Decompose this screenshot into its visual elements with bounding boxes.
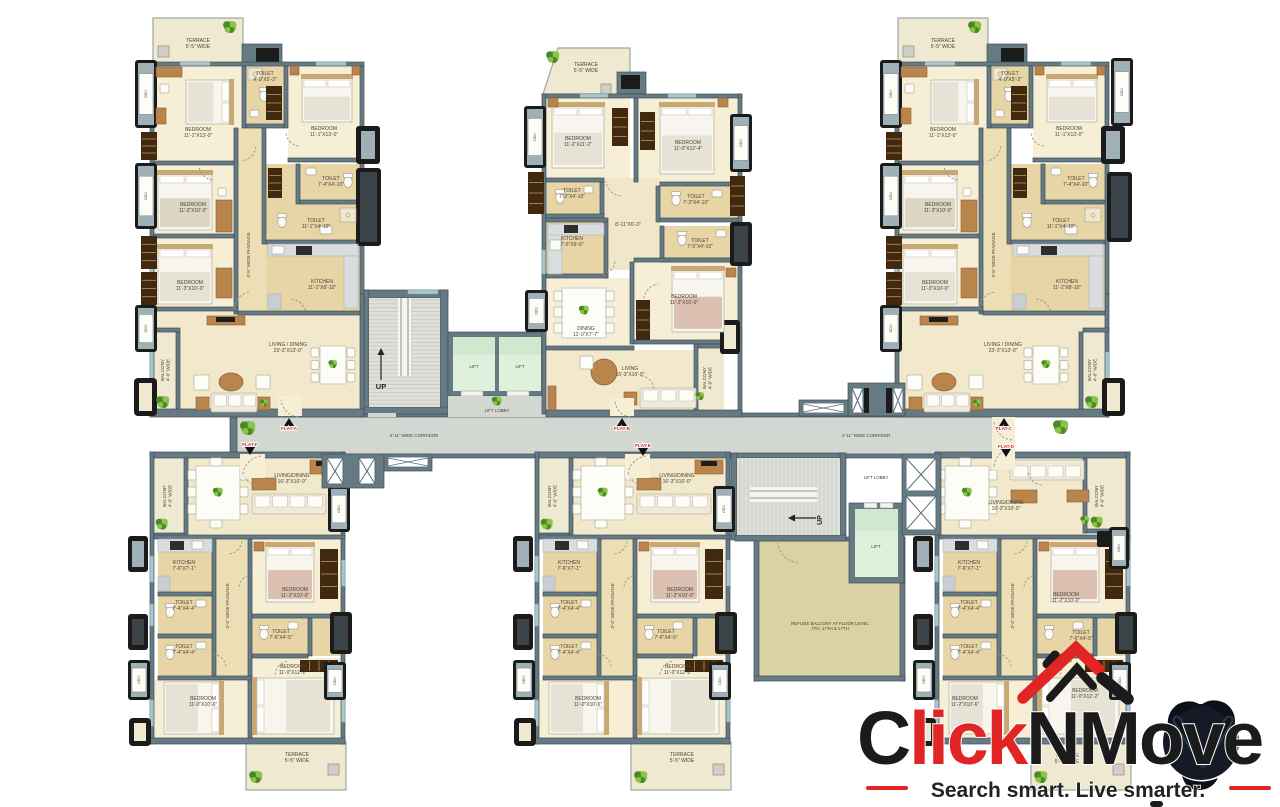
svg-text:7'-6"X4'-5": 7'-6"X4'-5" [269, 635, 292, 641]
svg-text:ClickNMove: ClickNMove [857, 696, 1262, 780]
svg-text:4'-11" WIDE CORRIDOR: 4'-11" WIDE CORRIDOR [842, 433, 891, 438]
svg-text:BALCONY: BALCONY [702, 367, 707, 389]
svg-text:7'-3"X4'-10": 7'-3"X4'-10" [683, 200, 709, 206]
svg-text:7TH, 17TH & 27TH: 7TH, 17TH & 27TH [811, 626, 849, 631]
svg-text:BALCONY: BALCONY [162, 485, 167, 507]
svg-text:4'-0" WIDE: 4'-0" WIDE [553, 485, 558, 507]
svg-text:7'-4"X4'-10": 7'-4"X4'-10" [318, 182, 344, 188]
svg-text:11'-1"X13'-0": 11'-1"X13'-0" [184, 133, 213, 139]
svg-text:11'-3"X10'-0": 11'-3"X10'-0" [176, 286, 205, 292]
svg-text:7'-6"X4'-5": 7'-6"X4'-5" [654, 635, 677, 641]
svg-text:11'-0"X12'-2": 11'-0"X12'-2" [279, 670, 308, 676]
svg-text:FLAT-C: FLAT-C [996, 426, 1013, 431]
svg-text:16'-3"X10'-0": 16'-3"X10'-0" [278, 479, 307, 485]
svg-text:ODU: ODU [1118, 677, 1122, 685]
svg-text:11'-2"X10'-0": 11'-2"X10'-0" [281, 593, 310, 599]
svg-text:ODU: ODU [922, 676, 926, 684]
svg-text:23'-3"X13'-0": 23'-3"X13'-0" [274, 348, 303, 354]
svg-text:7'-6"X4'-5": 7'-6"X4'-5" [1069, 636, 1092, 642]
svg-text:ODU: ODU [889, 90, 893, 98]
svg-text:ODU: ODU [522, 676, 526, 684]
svg-text:7'-6"X7'-1": 7'-6"X7'-1" [557, 566, 580, 572]
svg-text:11'-0"X10'-6": 11'-0"X10'-6" [189, 702, 218, 708]
svg-text:LIFT LOBBY: LIFT LOBBY [485, 408, 510, 413]
svg-text:11'-1"X13'-0": 11'-1"X13'-0" [310, 132, 339, 138]
svg-text:11'-1"X8'-10": 11'-1"X8'-10" [1053, 285, 1082, 291]
svg-text:ODU: ODU [889, 324, 893, 332]
svg-text:ODU: ODU [144, 192, 148, 200]
svg-text:ODU: ODU [1120, 88, 1124, 96]
svg-text:16'-3"X10'-0": 16'-3"X10'-0" [663, 479, 692, 485]
svg-text:7'-6"X7'-1": 7'-6"X7'-1" [957, 566, 980, 572]
svg-text:5'-5" WIDE: 5'-5" WIDE [574, 68, 599, 74]
svg-text:ODU: ODU [144, 324, 148, 332]
svg-text:11'-1"X13'-0": 11'-1"X13'-0" [929, 133, 958, 139]
svg-text:FLAT-F: FLAT-F [242, 442, 258, 447]
svg-text:7'-4"X4'-4": 7'-4"X4'-4" [957, 606, 980, 612]
svg-text:11'-2"X11'-2": 11'-2"X11'-2" [564, 142, 592, 148]
svg-text:7'-4"X4'-4": 7'-4"X4'-4" [957, 650, 980, 656]
svg-text:11'-0"X10'-6": 11'-0"X10'-6" [574, 702, 603, 708]
svg-text:ODU: ODU [718, 677, 722, 685]
svg-text:ODU: ODU [739, 139, 743, 147]
svg-text:11'-1"X8'-10": 11'-1"X8'-10" [308, 285, 337, 291]
svg-text:FLAT-A: FLAT-A [281, 426, 298, 431]
svg-text:16'-3"X10'-0": 16'-3"X10'-0" [616, 372, 645, 378]
svg-text:11'-2"X10'-0": 11'-2"X10'-0" [670, 300, 699, 306]
svg-text:7'-6"X7'-1": 7'-6"X7'-1" [172, 566, 195, 572]
svg-text:4'-5" WIDE PASSAGE: 4'-5" WIDE PASSAGE [991, 232, 996, 277]
svg-text:ODU: ODU [535, 307, 539, 315]
svg-text:11'-1"X13'-0": 11'-1"X13'-0" [1055, 132, 1084, 138]
svg-text:3'-4" WIDE PASSAGE: 3'-4" WIDE PASSAGE [610, 583, 615, 628]
svg-text:LIFT: LIFT [515, 364, 524, 369]
svg-text:7'-5"X9'-6": 7'-5"X9'-6" [560, 242, 583, 248]
svg-text:4'-0" WIDE: 4'-0" WIDE [1093, 359, 1098, 381]
svg-text:4'-0" WIDE: 4'-0" WIDE [168, 485, 173, 507]
svg-text:FLAT-B: FLAT-B [614, 426, 631, 431]
svg-text:ODU: ODU [533, 133, 537, 141]
svg-text:ODU: ODU [722, 505, 726, 513]
svg-text:11'-1"X4'-10": 11'-1"X4'-10" [302, 224, 331, 230]
svg-text:UP: UP [376, 382, 386, 391]
svg-text:LIFT: LIFT [469, 364, 478, 369]
svg-text:11'-0"X12'-4": 11'-0"X12'-4" [674, 146, 703, 152]
svg-text:7'-4"X4'-10": 7'-4"X4'-10" [1063, 182, 1089, 188]
svg-text:23'-3"X13'-0": 23'-3"X13'-0" [989, 348, 1018, 354]
svg-text:5'-5" WIDE: 5'-5" WIDE [186, 44, 211, 50]
svg-text:11'-2"X10'-0": 11'-2"X10'-0" [666, 593, 695, 599]
svg-text:4'-0" WIDE: 4'-0" WIDE [708, 367, 713, 389]
svg-text:8'-11"X6'-3": 8'-11"X6'-3" [615, 222, 641, 228]
svg-text:ODU: ODU [137, 676, 141, 684]
svg-text:ODU: ODU [144, 90, 148, 98]
svg-text:3'-4" WIDE PASSAGE: 3'-4" WIDE PASSAGE [225, 583, 230, 628]
svg-text:7'-4"X4'-4": 7'-4"X4'-4" [172, 650, 195, 656]
svg-text:BALCONY: BALCONY [1094, 485, 1099, 507]
svg-text:BALCONY: BALCONY [160, 359, 165, 381]
svg-text:BALCONY: BALCONY [1087, 359, 1092, 381]
svg-text:11'-3"X10'-0": 11'-3"X10'-0" [921, 286, 950, 292]
svg-text:ODU: ODU [1117, 544, 1121, 552]
svg-text:5'-5" WIDE: 5'-5" WIDE [285, 758, 310, 764]
svg-text:Search smart. Live smarter.: Search smart. Live smarter. [931, 779, 1205, 802]
svg-text:4'-0"X5'-3": 4'-0"X5'-3" [253, 77, 276, 83]
svg-text:LIFT: LIFT [871, 544, 881, 549]
svg-text:ODU: ODU [337, 505, 341, 513]
svg-text:7'-4"X4'-4": 7'-4"X4'-4" [172, 606, 195, 612]
svg-text:11'-0"X12'-2": 11'-0"X12'-2" [664, 670, 693, 676]
svg-text:11'-1"X4'-10": 11'-1"X4'-10" [1047, 224, 1076, 230]
svg-text:4'-0" WIDE: 4'-0" WIDE [1100, 485, 1105, 507]
svg-text:5'-5" WIDE: 5'-5" WIDE [670, 758, 695, 764]
svg-text:4'-11" WIDE CORRIDOR: 4'-11" WIDE CORRIDOR [390, 433, 439, 438]
svg-text:BALCONY: BALCONY [547, 485, 552, 507]
svg-text:7'-4"X4'-4": 7'-4"X4'-4" [557, 606, 580, 612]
svg-text:ODU: ODU [889, 192, 893, 200]
svg-text:7'-4"X4'-4": 7'-4"X4'-4" [557, 650, 580, 656]
svg-text:FLAT-D: FLAT-D [998, 444, 1015, 449]
svg-text:16'-3"X10'-0": 16'-3"X10'-0" [992, 506, 1021, 512]
svg-text:UP: UP [817, 515, 824, 525]
svg-text:7'-5"X4'-10": 7'-5"X4'-10" [687, 244, 713, 250]
svg-text:LIFT LOBBY: LIFT LOBBY [864, 475, 889, 480]
svg-text:4'-0"X5'-3": 4'-0"X5'-3" [998, 77, 1021, 83]
svg-text:5'-5" WIDE: 5'-5" WIDE [931, 44, 956, 50]
svg-text:FLAT-E: FLAT-E [635, 443, 651, 448]
svg-text:11'-2"X10'-0": 11'-2"X10'-0" [1052, 598, 1081, 604]
svg-text:4'-0" WIDE: 4'-0" WIDE [166, 359, 171, 381]
svg-text:11'-3"X10'-0": 11'-3"X10'-0" [924, 208, 953, 214]
svg-text:3'-4" WIDE PASSAGE: 3'-4" WIDE PASSAGE [1010, 583, 1015, 628]
svg-text:11'-0"X7'-7": 11'-0"X7'-7" [573, 332, 599, 338]
svg-text:4'-5" WIDE PASSAGE: 4'-5" WIDE PASSAGE [246, 232, 251, 277]
svg-text:7'-3"X4'-10": 7'-3"X4'-10" [559, 194, 585, 200]
svg-text:11'-3"X10'-0": 11'-3"X10'-0" [179, 208, 208, 214]
svg-text:ODU: ODU [333, 677, 337, 685]
